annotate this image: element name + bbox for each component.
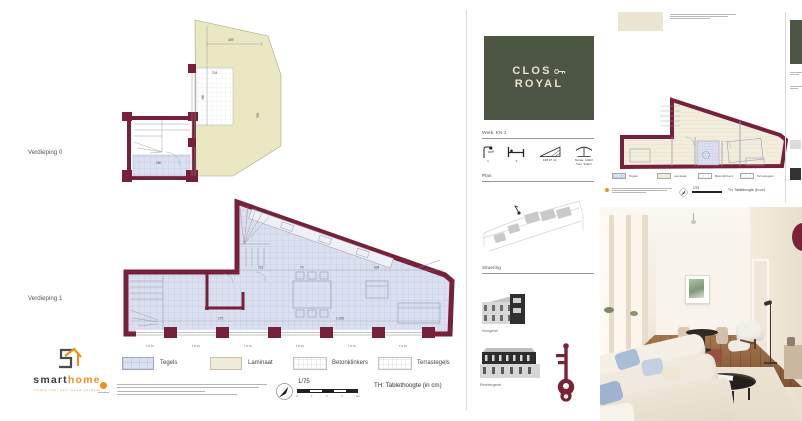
floor-lamp-pole	[770, 303, 771, 363]
dim-hall-width: 215	[258, 266, 264, 270]
dim-entry-width: 280	[156, 161, 162, 165]
svg-text:TH 91: TH 91	[348, 344, 357, 348]
sheet2-cert-icon	[605, 188, 609, 192]
dim-terrain-width: 389	[228, 38, 234, 42]
area-triangle-icon	[539, 145, 561, 158]
floor1-plan: 215 70 604 170 1.006 TH 91 TH 91 TH 91 T…	[126, 202, 452, 348]
fine-print	[117, 384, 269, 398]
sheet2-partial-panel	[790, 72, 802, 90]
sheet1-panel-divider	[466, 10, 467, 410]
facade-front-label: Voorgevel	[482, 329, 498, 333]
north-compass-icon	[275, 382, 294, 401]
facade-right-figure	[480, 348, 540, 380]
window-wall	[600, 215, 648, 365]
plan-sheet-1: Verdieping 0 Verdieping 1 389	[0, 0, 600, 421]
stat-bed: 2	[507, 145, 525, 166]
unit-title: Werk. KN 1	[482, 131, 594, 139]
scale-bar	[297, 389, 358, 393]
sheet2-partial-logo	[790, 20, 802, 64]
unit-stats: 1 2 138.97 m²	[482, 145, 594, 166]
smarthome-icon	[52, 346, 84, 373]
stat-shower: 1	[482, 145, 494, 166]
dim-living-width: 604	[374, 266, 380, 270]
sheet2-th-note: TH: Tablethoogte (in cm)	[728, 188, 765, 192]
legend-swatch-terrastegels	[378, 357, 412, 370]
dim-terrace-depth: 360	[201, 94, 205, 100]
location-marker	[515, 206, 519, 213]
scale-ticks: 01234m	[296, 394, 360, 398]
scale-label: 1/75	[298, 379, 310, 385]
legend-label-tegels: Tegels	[160, 360, 177, 366]
legend-swatch-laminaat	[210, 357, 242, 370]
sheet2-compass-icon	[679, 188, 688, 197]
svg-text:TH 91: TH 91	[399, 344, 408, 348]
stat-area: 138.97 m²	[539, 145, 561, 166]
plan-collage: Verdieping 0 Verdieping 1 389	[0, 0, 802, 421]
pendant-lamp	[691, 220, 696, 224]
sheet2-panel-divider	[785, 12, 786, 202]
certification-caption	[98, 392, 109, 393]
svg-text:TH 91: TH 91	[192, 344, 201, 348]
dim-terrain-depth: 350	[256, 112, 260, 118]
svg-text:TH 91: TH 91	[244, 344, 253, 348]
key-glyph-icon	[554, 67, 566, 76]
floor0-plan: 389 204 360 350 280	[122, 20, 281, 182]
window-plant	[630, 311, 638, 316]
svg-text:TH 91: TH 91	[296, 344, 305, 348]
svg-text:TH 91: TH 91	[146, 344, 155, 348]
clos-royal-line1: CLOS	[512, 65, 565, 78]
stat-terrace: Terras: 110m² Tuin: 312m²	[574, 145, 594, 166]
sheet2-scale-label: 1/75	[693, 186, 699, 190]
smarthome-name: smarthome	[24, 374, 110, 386]
plan-sheet-2: Tegels Laminaat Betonklinkers Terrastege…	[600, 0, 802, 207]
bed-icon	[507, 145, 525, 159]
clos-royal-logo: CLOS ROYAL	[484, 36, 594, 120]
dim-stair-width: 170	[218, 317, 224, 321]
window-plant	[604, 307, 614, 313]
dim-terrace-width: 204	[212, 71, 218, 75]
wall-art-frame	[685, 275, 710, 304]
sheet2-fine-print	[612, 188, 674, 194]
clos-royal-line2: ROYAL	[515, 78, 564, 91]
legend-swatch-tegels	[122, 357, 154, 370]
sheet2-scale-bar	[692, 191, 722, 193]
section-situering-header: Situering	[482, 266, 594, 274]
dining-chair	[716, 327, 728, 344]
cream-pillow	[661, 366, 681, 381]
shower-icon	[482, 145, 494, 159]
legend-swatch-betonklinkers	[293, 357, 327, 370]
dim-facade-width: 1.006	[336, 317, 344, 321]
interior-render-photo	[600, 207, 802, 421]
tablet-height-note: TH: Tablethoogte (in cm)	[374, 382, 442, 389]
key-icon	[554, 342, 578, 402]
dim-hall-gap: 70	[300, 266, 304, 270]
section-plan-header: Plan	[482, 174, 594, 182]
smarthome-tagline: ruimte voor een nieuw verhaal	[22, 388, 112, 392]
throw-blanket	[600, 402, 635, 421]
side-console	[784, 345, 802, 379]
facade-right-label: Rechtergevel	[480, 383, 501, 387]
th-window-labels: TH 91 TH 91 TH 91 TH 91 TH 91 TH 91	[146, 344, 408, 348]
facade-front-figure	[482, 290, 528, 326]
site-plan-map	[479, 191, 587, 257]
parasol-icon	[574, 145, 594, 158]
legend-label-terrastegels: Terrastegels	[417, 360, 450, 366]
legend-label-laminaat: Laminaat	[248, 360, 273, 366]
legend-label-betonklinkers: Betonklinkers	[332, 360, 368, 366]
